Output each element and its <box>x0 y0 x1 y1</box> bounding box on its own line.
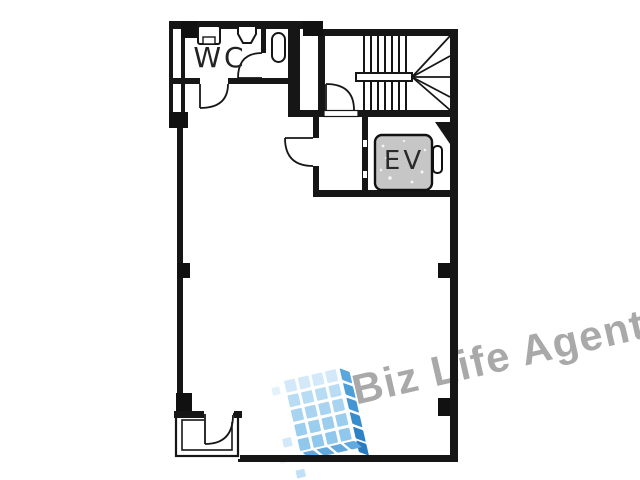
stair-handrail <box>356 73 412 81</box>
column <box>438 263 450 278</box>
wall-top-stair <box>318 29 458 36</box>
wall-ev-partition <box>362 117 368 197</box>
wall-wc-right <box>288 21 300 117</box>
urinal-icon <box>272 33 285 62</box>
wall-right <box>450 29 458 462</box>
wall-wc-bottom-left <box>169 78 200 84</box>
wall-ev-left-upper <box>313 117 319 138</box>
column <box>177 263 190 278</box>
wc-label: WC <box>193 41 246 74</box>
column <box>176 393 192 414</box>
stair-door <box>326 84 354 110</box>
wc-exit-door <box>200 84 228 108</box>
stair-door-threshold <box>324 111 358 117</box>
column <box>169 112 188 128</box>
corner-fill-triangle <box>435 122 450 144</box>
floor-plan: WC EV <box>0 0 640 480</box>
elevator-counterweight <box>433 146 442 173</box>
entrance-door-opening <box>204 410 233 422</box>
jamb-notch <box>363 171 367 178</box>
staircase <box>356 36 450 110</box>
wall-left-outer-line <box>169 21 173 128</box>
ev-label: EV <box>384 146 424 176</box>
wall-stair-left <box>318 36 325 117</box>
wall-wc-partition <box>261 27 266 53</box>
wall-bottom <box>238 455 458 462</box>
jamb-notch <box>363 140 367 147</box>
entrance-vestibule <box>174 410 242 459</box>
column <box>303 21 323 36</box>
floor-plan-page: Biz Life Agent <box>0 0 640 480</box>
column <box>181 21 197 38</box>
elevator: EV <box>375 135 442 190</box>
column <box>438 398 450 416</box>
wall-stair-bottom-right <box>357 110 458 117</box>
stair-winder-fan <box>412 36 450 110</box>
wall-stair-bottom-left <box>295 110 325 117</box>
elevator-hall-door <box>285 138 313 166</box>
walls <box>169 21 458 462</box>
